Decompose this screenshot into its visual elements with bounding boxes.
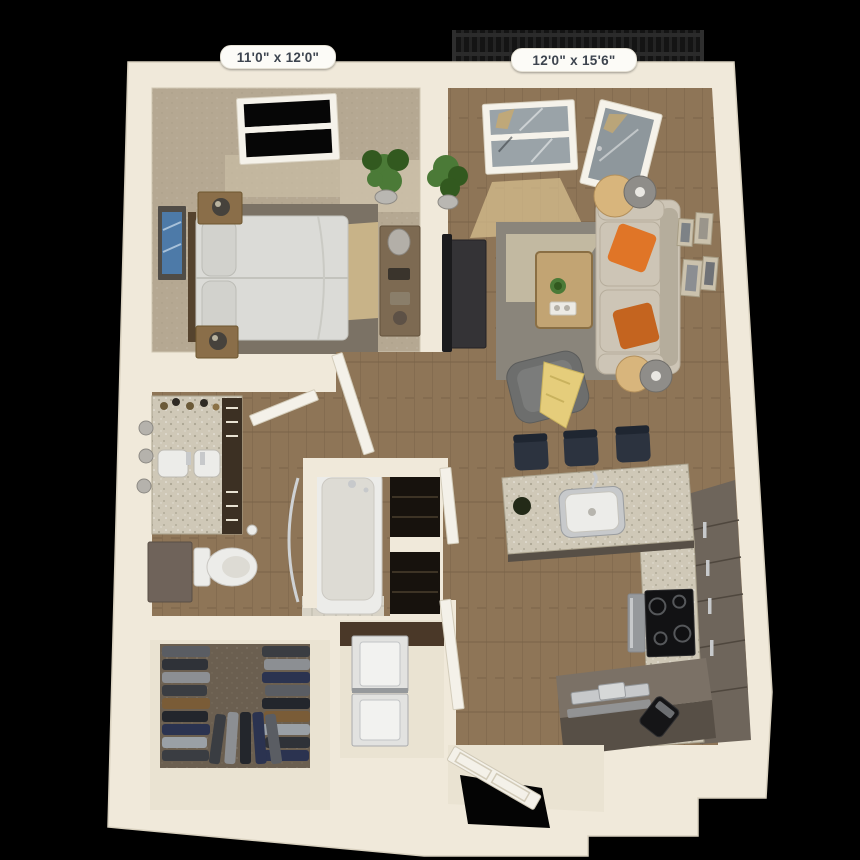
coffee-table: [536, 252, 592, 328]
bedroom-window: [236, 93, 339, 164]
nightstand-bottom: [196, 326, 238, 358]
table-lamp: [212, 198, 230, 216]
faucet: [200, 452, 205, 465]
tub-faucet: [348, 480, 356, 488]
nightstand-top: [198, 192, 242, 224]
washer-dryer: [352, 636, 408, 746]
wall-art: [158, 206, 186, 280]
laundry-closet: [340, 620, 444, 758]
tv-console: [442, 234, 486, 352]
floor-plan-canvas: [0, 0, 860, 860]
bedroom: [152, 88, 420, 358]
bedroom-dimensions-label: 11'0" x 12'0": [220, 45, 336, 69]
sink: [194, 450, 220, 477]
bathtub: [314, 468, 382, 614]
living-room-dimensions-label: 12'0" x 15'6": [511, 48, 637, 72]
wall: [305, 458, 448, 477]
sofa: [596, 200, 680, 374]
floor-plan-render: 11'0" x 12'0" 12'0" x 15'6": [0, 0, 860, 860]
living-window: [482, 100, 578, 175]
linen-cabinet: [222, 398, 242, 534]
sink: [158, 450, 188, 477]
tv: [442, 234, 452, 352]
stove: [645, 589, 695, 657]
table-lamp: [209, 332, 227, 350]
pillow: [202, 220, 236, 276]
toilet: [194, 548, 257, 586]
clothes-rack-bottom: [209, 712, 283, 765]
clothes-rack-left: [162, 646, 210, 761]
end-table-bottom: [616, 356, 672, 392]
dresser: [380, 226, 420, 336]
bed: [188, 212, 348, 342]
wall: [303, 458, 317, 608]
bathroom: [137, 392, 390, 616]
peninsula-counter: [502, 464, 694, 562]
counter-plant: [513, 497, 531, 515]
toilet-paper-holder: [247, 525, 257, 535]
toilet-cabinet: [148, 542, 192, 602]
faucet: [186, 452, 191, 465]
table-lamp: [388, 229, 410, 255]
walk-in-closet: [150, 640, 330, 810]
